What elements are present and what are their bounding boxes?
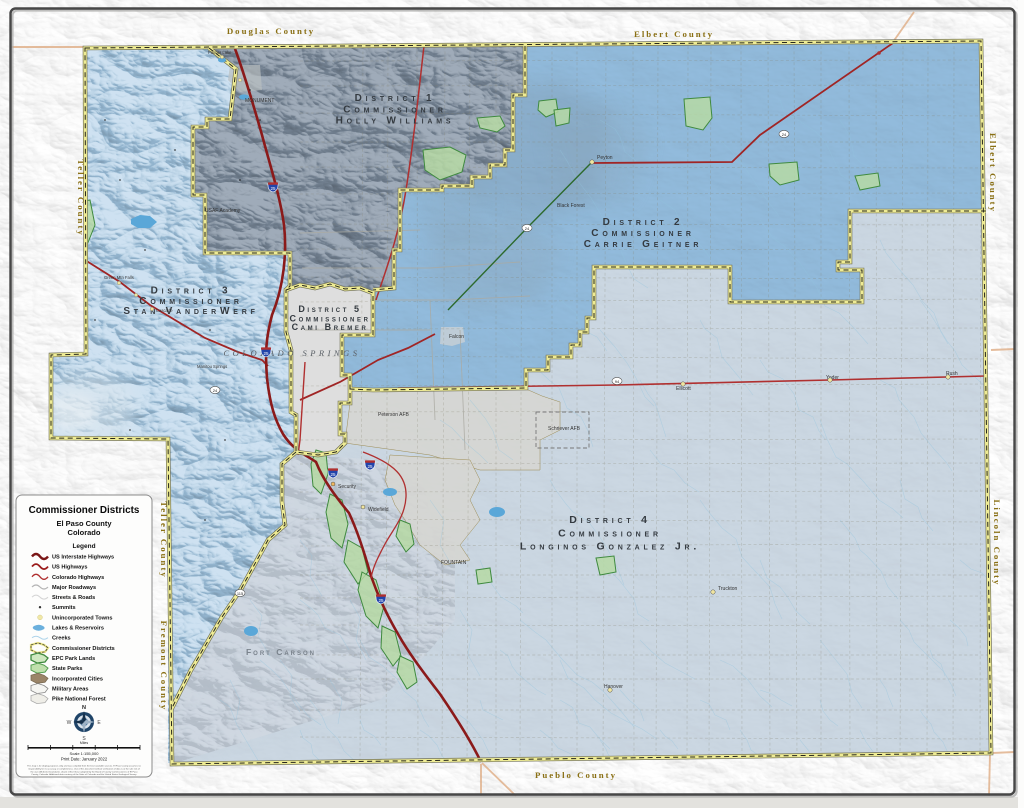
svg-text:Colorado Highways: Colorado Highways <box>52 575 104 581</box>
svg-text:Commissioner Districts: Commissioner Districts <box>52 646 115 652</box>
svg-text:Major Roadways: Major Roadways <box>52 585 96 591</box>
svg-text:Widefield: Widefield <box>368 507 389 513</box>
svg-text:Longinos Gonzalez Jr.: Longinos Gonzalez Jr. <box>520 541 700 553</box>
svg-text:Scale 1:155,000: Scale 1:155,000 <box>70 751 100 756</box>
svg-text:Security: Security <box>338 484 357 490</box>
svg-text:District 3: District 3 <box>151 286 232 297</box>
svg-text:Fort Carson: Fort Carson <box>246 647 316 657</box>
svg-text:Lincoln County: Lincoln County <box>992 500 1002 587</box>
svg-text:Ellicott: Ellicott <box>676 386 691 392</box>
svg-text:COLORADO SPRINGS: COLORADO SPRINGS <box>224 348 361 358</box>
svg-text:Legend: Legend <box>72 543 95 550</box>
svg-text:Print Date: January 2022: Print Date: January 2022 <box>61 757 108 762</box>
svg-text:Incorporated Cities: Incorporated Cities <box>52 676 103 682</box>
svg-text:Summits: Summits <box>52 605 76 611</box>
svg-text:Schriever AFB: Schriever AFB <box>548 426 581 432</box>
svg-text:Teller County: Teller County <box>159 501 169 579</box>
svg-text:Streets & Roads: Streets & Roads <box>52 595 95 601</box>
svg-text:District 5: District 5 <box>298 304 361 314</box>
svg-text:County, Colorado. Additional d: County, Colorado. Additional data courte… <box>31 773 137 776</box>
svg-text:Commissioner: Commissioner <box>558 528 662 540</box>
svg-text:Pike National Forest: Pike National Forest <box>52 697 106 703</box>
svg-text:Carrie Geitner: Carrie Geitner <box>584 239 702 250</box>
svg-text:Green Mtn Falls: Green Mtn Falls <box>104 275 134 280</box>
svg-text:Commissioner: Commissioner <box>343 105 446 116</box>
svg-text:Teller County: Teller County <box>76 159 86 237</box>
svg-text:Holly Williams: Holly Williams <box>336 116 455 127</box>
svg-text:Manitou Springs: Manitou Springs <box>197 364 227 369</box>
svg-text:Commissioner Districts: Commissioner Districts <box>29 505 140 516</box>
svg-text:Palmer Lake: Palmer Lake <box>208 50 232 55</box>
svg-text:Miles: Miles <box>80 741 88 745</box>
svg-text:24: 24 <box>213 388 218 393</box>
svg-text:Stan VanderWerf: Stan VanderWerf <box>123 306 258 317</box>
svg-text:District 2: District 2 <box>603 217 684 228</box>
svg-text:El Paso County: El Paso County <box>56 519 112 528</box>
svg-text:Peterson AFB: Peterson AFB <box>378 412 410 418</box>
svg-text:25: 25 <box>270 186 276 191</box>
svg-text:24: 24 <box>525 226 530 231</box>
svg-text:District 4: District 4 <box>569 514 651 526</box>
svg-text:Peyton: Peyton <box>597 155 613 161</box>
svg-text:MONUMENT: MONUMENT <box>245 98 274 104</box>
svg-text:FOUNTAIN: FOUNTAIN <box>441 560 467 566</box>
svg-text:Commissioner: Commissioner <box>591 228 694 239</box>
svg-text:Fremont County: Fremont County <box>159 621 169 712</box>
svg-text:Cami Bremer: Cami Bremer <box>292 322 369 332</box>
svg-text:25: 25 <box>263 351 269 356</box>
svg-text:Hanover: Hanover <box>604 684 623 690</box>
svg-text:24: 24 <box>782 132 787 137</box>
svg-text:115: 115 <box>237 591 244 596</box>
svg-text:W: W <box>67 720 72 726</box>
svg-text:Black Forest: Black Forest <box>557 203 585 209</box>
svg-text:Military Areas: Military Areas <box>52 687 88 693</box>
svg-text:25: 25 <box>367 464 373 469</box>
svg-text:Pueblo County: Pueblo County <box>535 770 617 780</box>
svg-text:USAF Academy: USAF Academy <box>205 208 241 214</box>
svg-text:Colorado: Colorado <box>68 528 101 537</box>
svg-text:This map is for display purpos: This map is for display purposes only an… <box>27 765 141 768</box>
svg-text:Creeks: Creeks <box>52 636 71 642</box>
svg-text:Cascade: Cascade <box>156 308 173 313</box>
svg-text:Douglas County: Douglas County <box>227 26 315 36</box>
svg-text:94: 94 <box>615 379 620 384</box>
svg-text:Truckton: Truckton <box>718 586 737 592</box>
svg-text:Elbert County: Elbert County <box>988 133 998 213</box>
svg-text:Elbert County: Elbert County <box>634 29 714 39</box>
svg-text:Falcon: Falcon <box>449 334 464 340</box>
svg-text:US Interstate Highways: US Interstate Highways <box>52 555 114 561</box>
svg-text:US Highways: US Highways <box>52 565 87 571</box>
svg-text:25: 25 <box>330 472 336 477</box>
svg-text:N: N <box>82 705 86 711</box>
svg-text:Unincorporated Towns: Unincorporated Towns <box>52 615 113 621</box>
svg-text:EPC Park Lands: EPC Park Lands <box>52 656 95 662</box>
svg-text:the user. All district boundar: the user. All district boundaries shown … <box>31 770 139 773</box>
svg-text:Lakes & Reservoirs: Lakes & Reservoirs <box>52 626 104 632</box>
svg-text:District 1: District 1 <box>355 93 436 104</box>
svg-text:State Parks: State Parks <box>52 666 82 672</box>
svg-text:responsibility for its accurac: responsibility for its accuracy or compl… <box>28 767 140 770</box>
svg-text:25: 25 <box>378 598 384 603</box>
